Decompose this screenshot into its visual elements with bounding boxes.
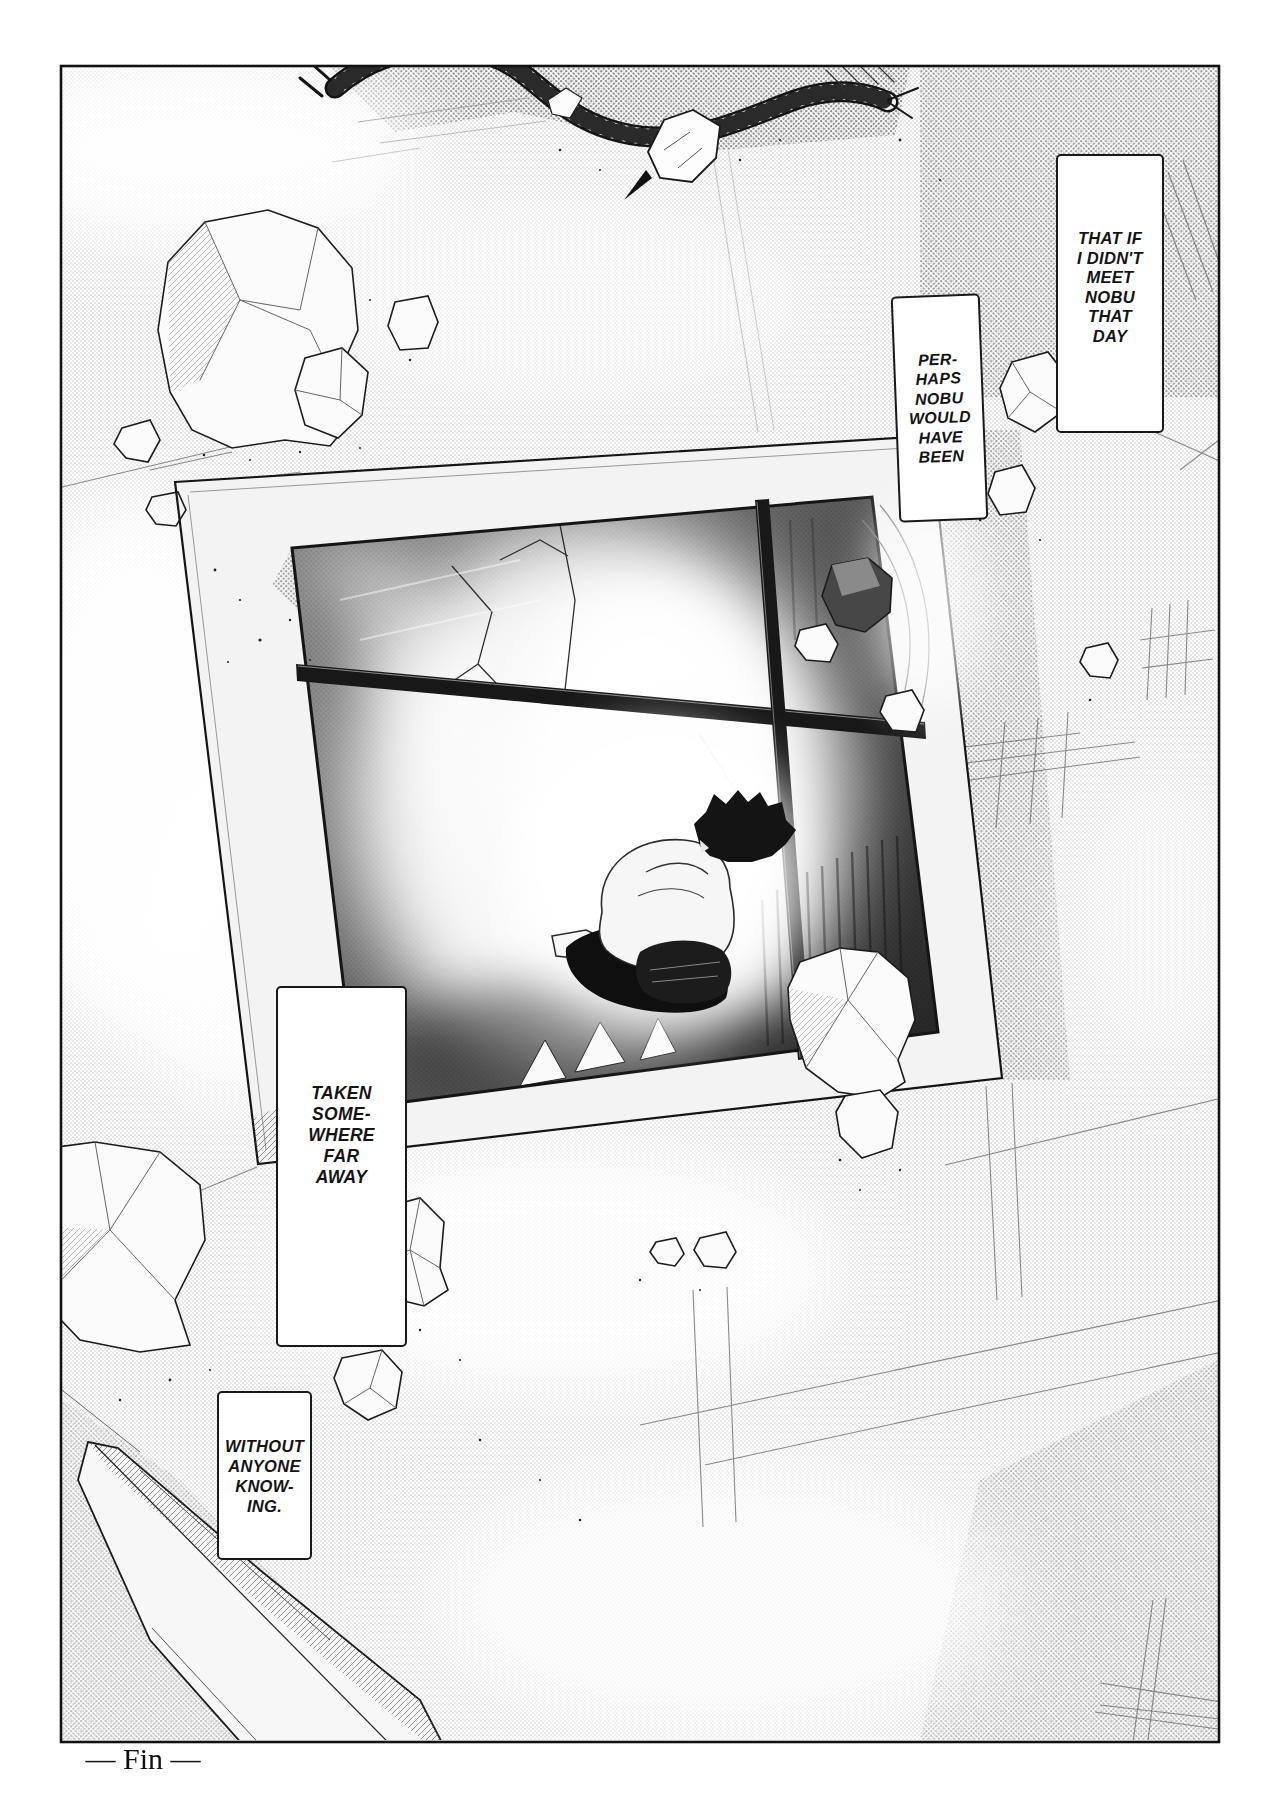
speech-bubble-that-day: THAT IF I DIDN'T MEET NOBU THAT DAY bbox=[1056, 154, 1164, 433]
speech-text: THAT IF I DIDN'T MEET NOBU THAT DAY bbox=[1077, 229, 1143, 346]
figure-shorts bbox=[636, 940, 731, 1003]
speech-bubble-taken: TAKEN SOME- WHERE FAR AWAY bbox=[276, 986, 407, 1347]
speech-text: TAKEN SOME- WHERE FAR AWAY bbox=[308, 1083, 375, 1188]
crouching-figure bbox=[510, 730, 810, 1030]
speech-text: WITHOUT ANYONE KNOW- ING. bbox=[225, 1436, 304, 1516]
speech-text: PER- HAPS NOBU WOULD HAVE BEEN bbox=[906, 348, 972, 467]
manga-page: THAT IF I DIDN'T MEET NOBU THAT DAY PER-… bbox=[0, 0, 1280, 1807]
fin-label: — Fin — bbox=[58, 1742, 228, 1776]
speech-bubble-without: WITHOUT ANYONE KNOW- ING. bbox=[217, 1391, 312, 1560]
slab-bottom-left bbox=[28, 1142, 205, 1352]
speech-bubble-perhaps: PER- HAPS NOBU WOULD HAVE BEEN bbox=[891, 293, 989, 522]
